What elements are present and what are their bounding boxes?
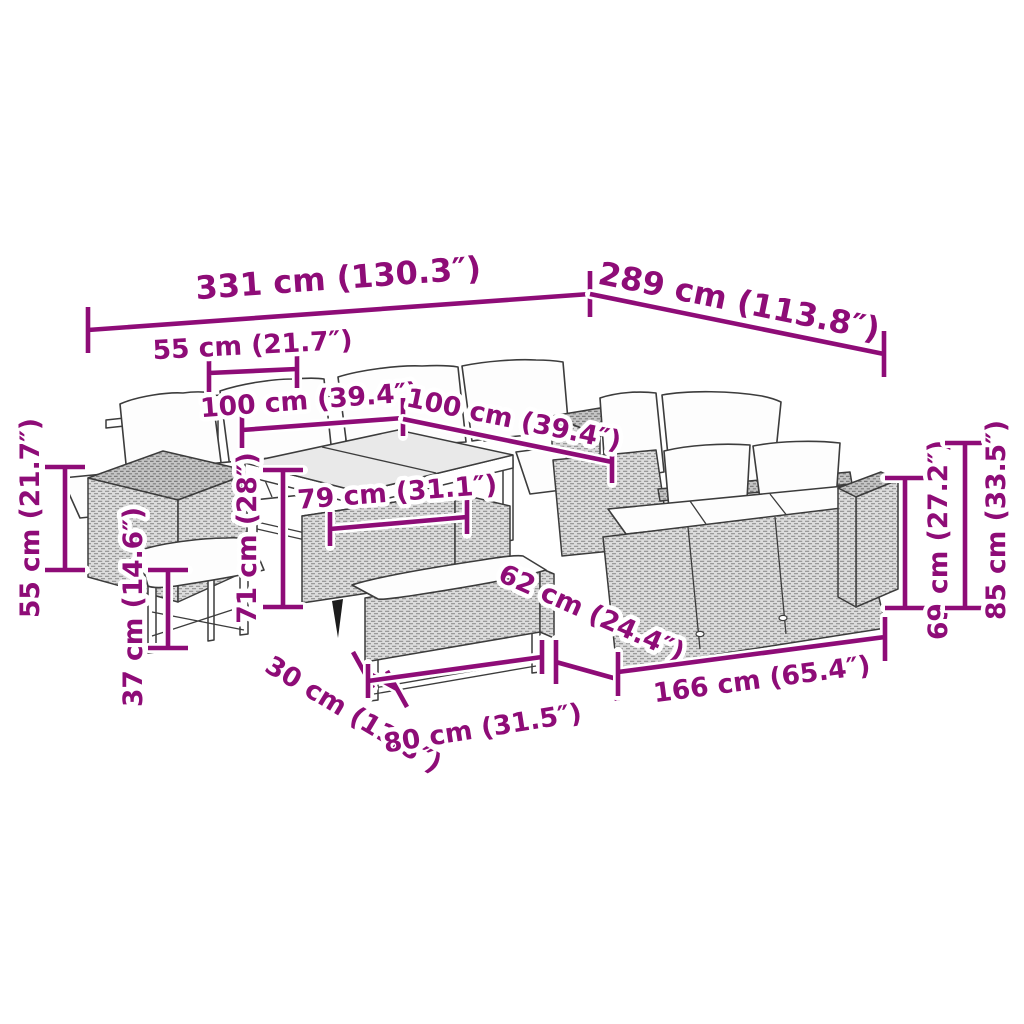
dimension-label: 55 cm (21.7″) [152, 325, 353, 366]
dimension-cube-height: 55 cm (21.7″) [15, 418, 85, 618]
dimension-label: 55 cm (21.7″) [15, 418, 46, 618]
dimension-overall-depth: 289 cm (113.8″) [590, 254, 884, 377]
table-foot [332, 599, 343, 638]
dimension-label: 71 cm (28″) [232, 452, 263, 624]
screw-detail [779, 615, 787, 620]
dimension-label: 331 cm (130.3″) [194, 249, 482, 307]
dimension-label: 37 cm (14.6″) [118, 507, 149, 707]
dimension-back-height: 85 cm (33.5″) [945, 420, 1012, 620]
product-dimension-diagram: 331 cm (130.3″) 289 cm (113.8″) 55 cm (2… [0, 0, 1024, 1024]
right-arm-cube-side [838, 488, 856, 607]
right-arm-cube-front [856, 480, 898, 607]
diagram-svg: 331 cm (130.3″) 289 cm (113.8″) 55 cm (2… [0, 0, 1024, 1024]
screw-detail [696, 631, 704, 636]
stool-leg [148, 585, 156, 653]
dimension-label: 85 cm (33.5″) [981, 420, 1012, 620]
stool-leg [208, 579, 214, 641]
